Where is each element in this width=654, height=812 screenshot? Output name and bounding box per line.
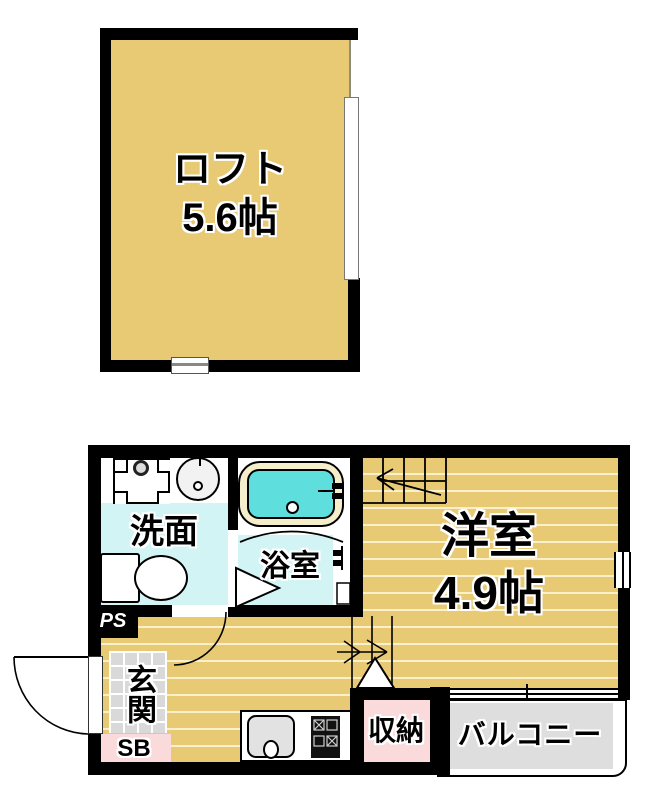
washbasin-icon: [176, 457, 220, 501]
pan-corner-tr: [157, 460, 170, 473]
pan-faucet: [133, 460, 149, 476]
shoe-box-label: SB: [101, 735, 167, 764]
washbasin-drain: [193, 481, 203, 491]
stove-icon: [311, 716, 340, 758]
pipe-space-label: PS: [88, 610, 138, 633]
kitchen-sink-drain: [263, 740, 279, 759]
loft-name: ロフト: [111, 148, 349, 194]
entrance-door-arc-icon: [14, 657, 88, 734]
toilet-icon: [134, 555, 188, 601]
washroom-door-opening: [172, 605, 228, 617]
western-room-window: [614, 552, 631, 588]
bathroom-label: 浴室: [240, 549, 340, 585]
balcony-window: [437, 688, 618, 700]
western-room-name: 洋室: [363, 508, 615, 566]
loft-label: ロフト 5.6帖: [111, 148, 349, 242]
washroom-label: 洗面: [100, 512, 228, 553]
loft-right-ledge: [349, 40, 351, 98]
main-wall-bottom: [88, 762, 450, 775]
wall-bathroom-western: [350, 458, 363, 605]
bathroom-door-opening: [228, 530, 238, 607]
loft-wall-top: [100, 28, 358, 40]
entrance-label: 玄関: [109, 655, 167, 733]
loft-wall-right-lower: [348, 278, 360, 372]
loft-wall-left: [100, 28, 111, 372]
main-wall-top: [88, 445, 630, 458]
bathtub-drain: [286, 501, 299, 514]
loft-window-bottom: [171, 357, 209, 374]
floorplan-canvas: ロフト 5.6帖 PS: [0, 0, 654, 812]
balcony-label: バルコニー: [440, 718, 620, 752]
entrance-door-leaf: [88, 656, 103, 734]
western-room-size: 4.9帖: [363, 566, 615, 621]
loft-size: 5.6帖: [111, 194, 349, 242]
pan-corner-tl: [115, 460, 128, 473]
loft-wall-bottom: [100, 360, 360, 372]
storage-label: 収納: [352, 714, 440, 748]
western-room-label: 洋室 4.9帖: [363, 508, 615, 621]
pan-corner-br: [157, 491, 170, 504]
pan-corner-bl: [115, 491, 128, 504]
